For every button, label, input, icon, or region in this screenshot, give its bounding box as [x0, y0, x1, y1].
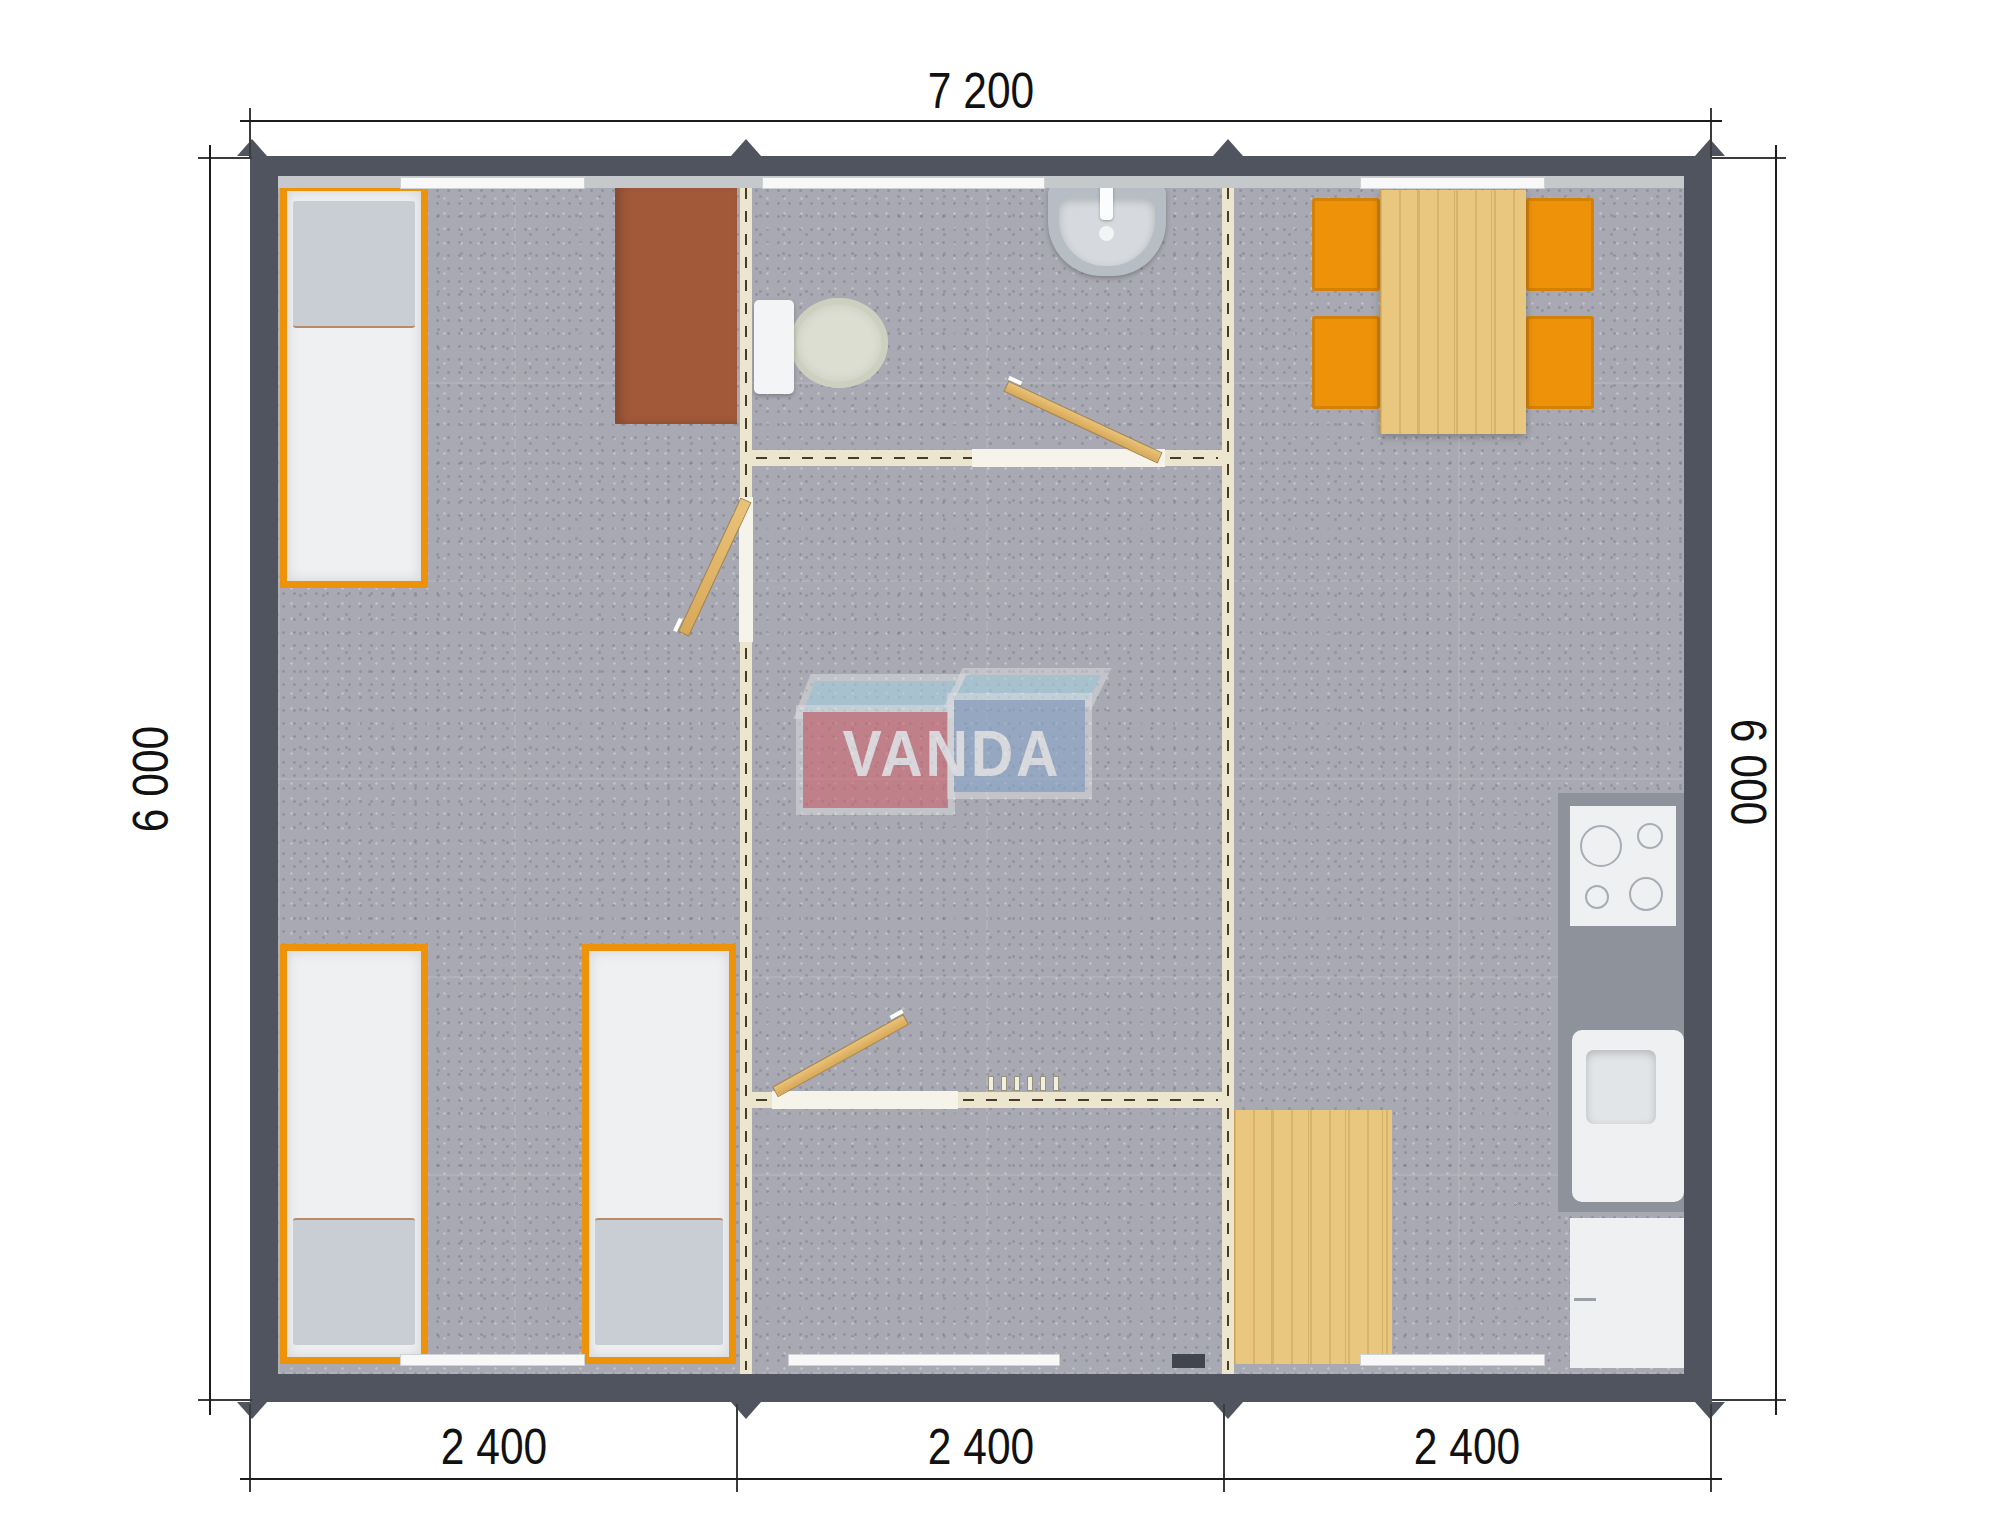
wall-hook: [1027, 1076, 1033, 1091]
dimension-label-bottom-1: 2 400: [441, 1422, 547, 1472]
dimension-label-bottom-3: 2 400: [1414, 1422, 1520, 1472]
window: [400, 1354, 585, 1366]
wall-hook: [1001, 1076, 1007, 1091]
wall-hook: [1053, 1076, 1059, 1091]
outer-wall: [250, 156, 1712, 1402]
wall-hook: [988, 1076, 994, 1091]
dimension-line-top: [240, 120, 1722, 122]
dimension-line-bottom: [240, 1478, 1722, 1480]
entrance-door-sill: [788, 1354, 1060, 1366]
window: [400, 177, 585, 189]
dimension-label-left: 6 000: [126, 726, 176, 832]
extension-line: [249, 108, 251, 158]
module-joint-marker: [237, 139, 267, 156]
dimension-label-right: 6 000: [1723, 719, 1773, 825]
extension-line: [198, 1399, 252, 1401]
window: [762, 177, 1045, 189]
module-joint-marker: [237, 1402, 267, 1419]
dimension-label-top: 7 200: [928, 66, 1034, 116]
window: [1360, 1354, 1545, 1366]
module-joint-marker: [1213, 1402, 1243, 1419]
door-threshold: [1172, 1354, 1205, 1368]
window: [1360, 177, 1545, 189]
module-joint-marker: [1213, 139, 1243, 156]
module-joint-marker: [731, 139, 761, 156]
extension-line: [1710, 108, 1712, 158]
dimension-label-bottom-2: 2 400: [928, 1422, 1034, 1472]
wall-hook: [1040, 1076, 1046, 1091]
wall-hook: [1014, 1076, 1020, 1091]
extension-line: [198, 157, 252, 159]
dimension-line-left: [209, 145, 211, 1415]
floor-plan: VANDA 7 200 2 400 2 400 2 400 6 000 6 00…: [0, 0, 2000, 1537]
